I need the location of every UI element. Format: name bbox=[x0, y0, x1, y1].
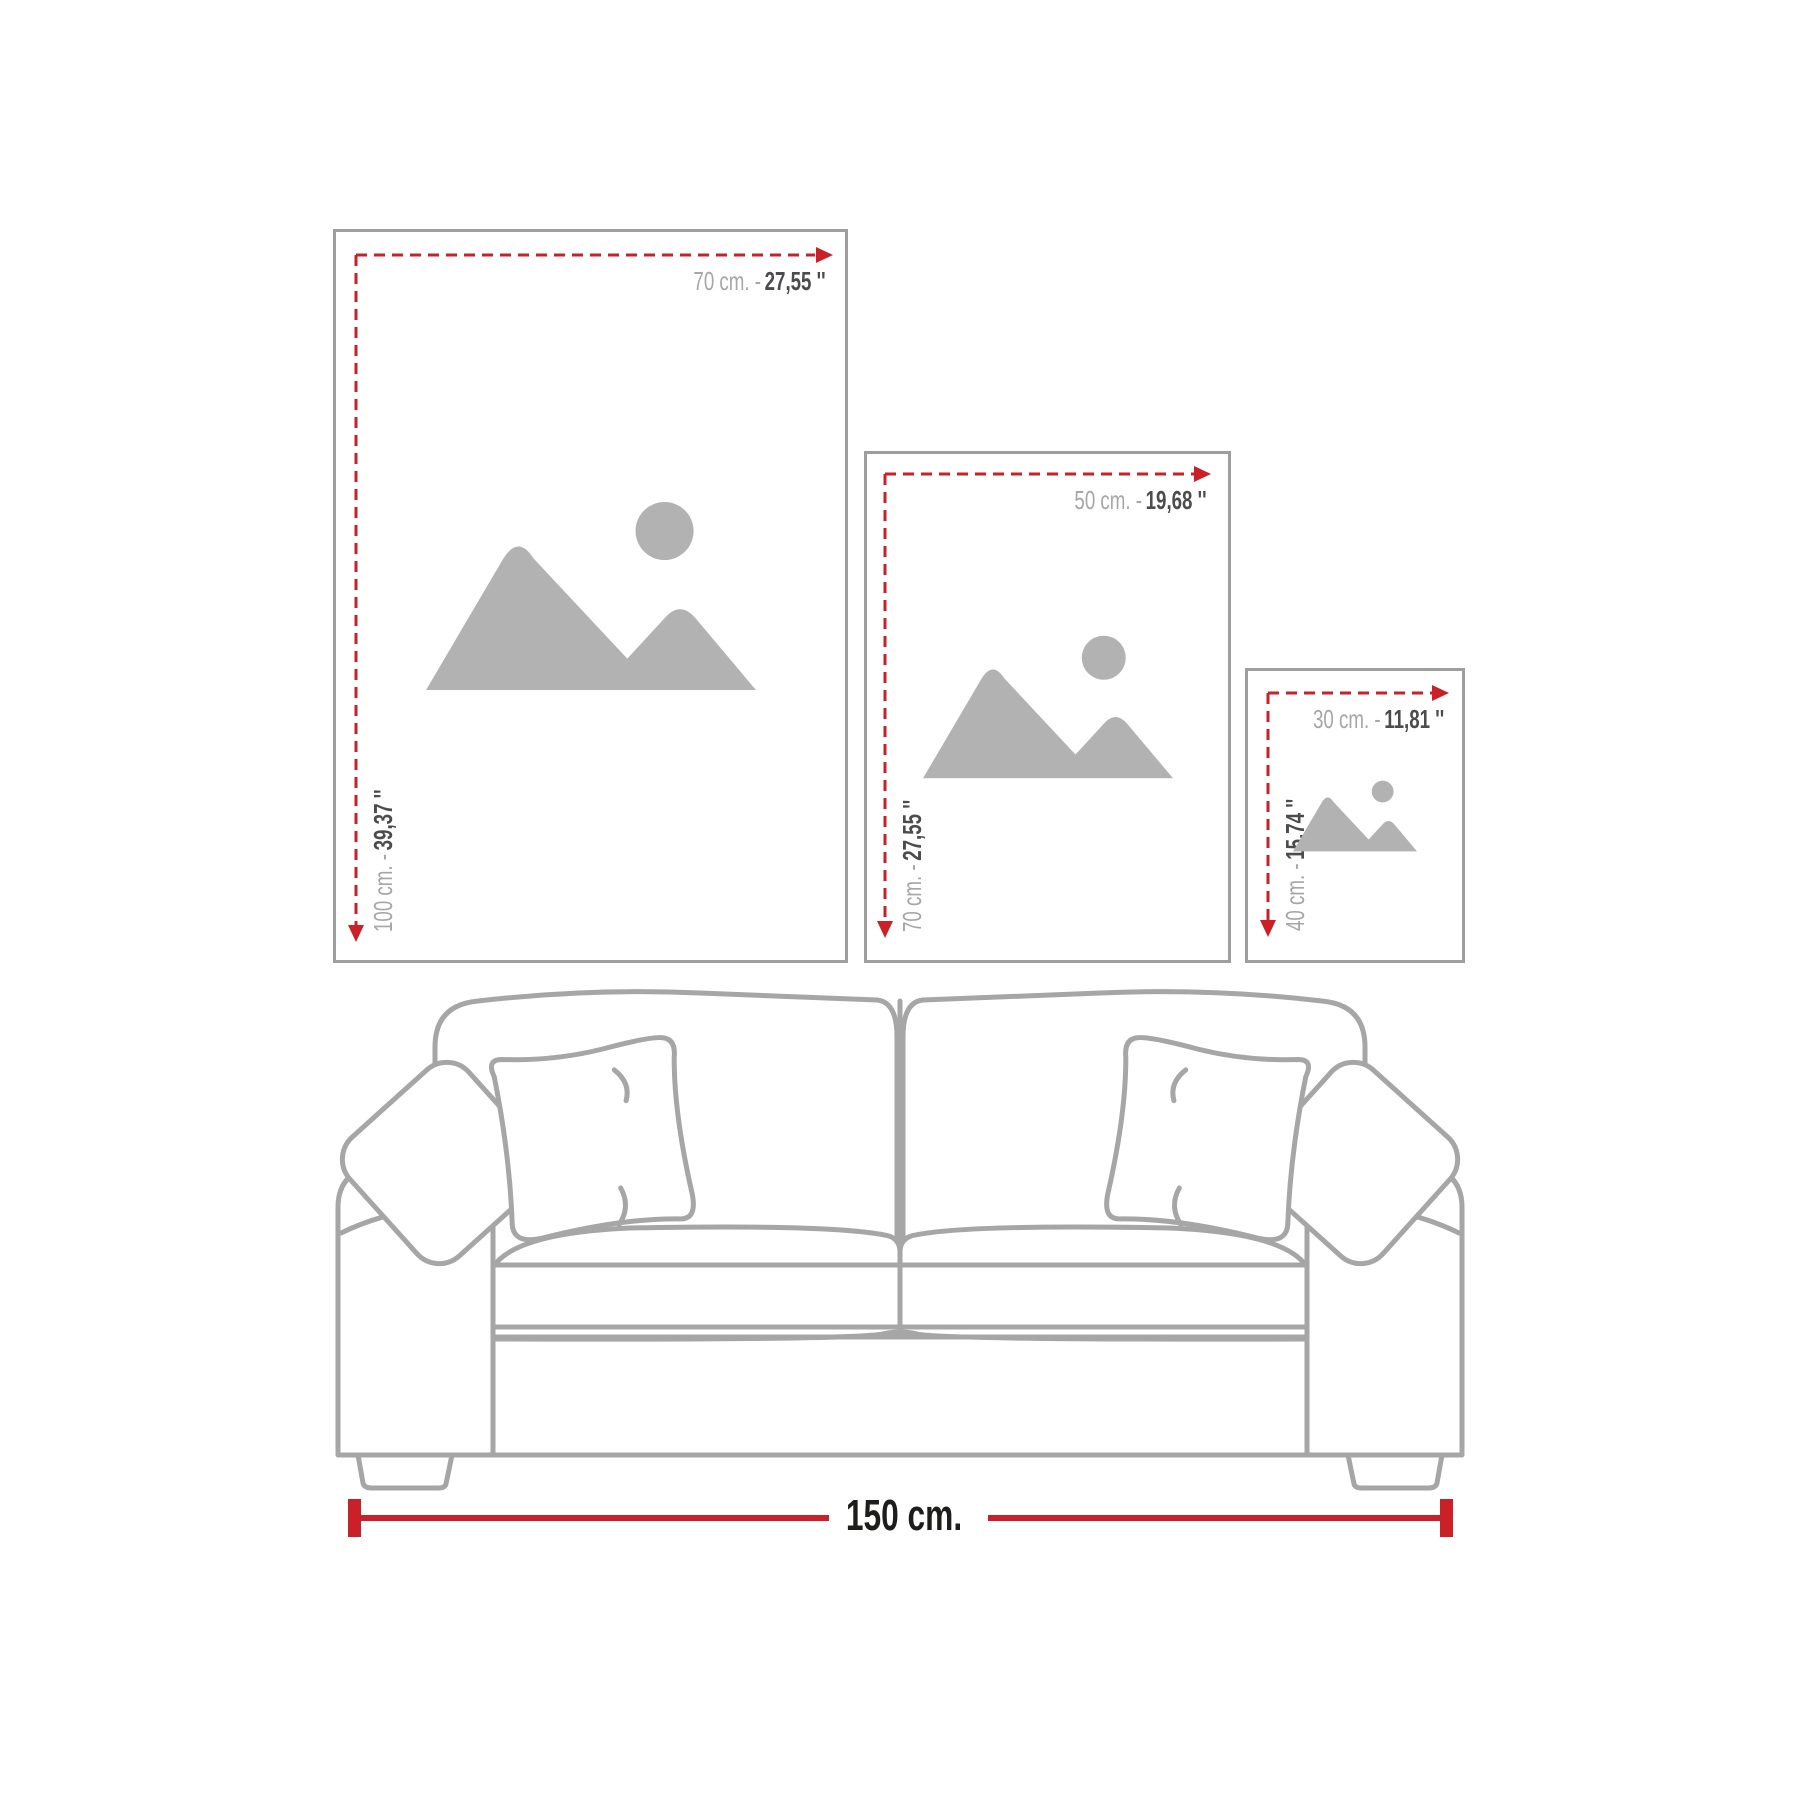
measure-line-right bbox=[988, 1515, 1440, 1521]
arrow-down-icon bbox=[348, 925, 364, 942]
width-inch-value: 11,81 '' bbox=[1384, 704, 1444, 734]
arrow-right-icon bbox=[1432, 685, 1449, 701]
height-inch-value: 39,37 '' bbox=[368, 789, 398, 850]
height-dimension-label: 100 cm. -39,37 '' bbox=[366, 789, 400, 932]
size-guide-canvas: 70 cm. -27,55 '' 100 cm. -39,37 '' 50 cm… bbox=[0, 0, 1800, 1800]
mountains-icon bbox=[923, 670, 1173, 779]
image-placeholder-icon bbox=[923, 636, 1173, 779]
width-inch-value: 27,55 '' bbox=[765, 266, 826, 296]
poster-frame-large: 70 cm. -27,55 '' 100 cm. -39,37 '' bbox=[333, 229, 848, 963]
sofa-seat-cushion-left bbox=[493, 1227, 900, 1337]
width-dimension-label: 30 cm. -11,81 '' bbox=[1313, 702, 1444, 736]
mountains-icon bbox=[426, 547, 756, 690]
sofa-width-label: 150 cm. bbox=[846, 1492, 962, 1540]
sofa-seat-cushion-right bbox=[900, 1227, 1307, 1337]
sofa-foot-right bbox=[1348, 1455, 1442, 1488]
pillow-outline bbox=[1104, 1036, 1309, 1243]
height-cm-value: 100 cm. - bbox=[368, 854, 398, 932]
arrow-down-icon bbox=[1260, 920, 1276, 937]
height-cm-value: 70 cm. - bbox=[897, 864, 927, 932]
poster-frame-small: 30 cm. -11,81 '' 40 cm. -15,74 '' bbox=[1245, 668, 1465, 963]
pillow-outline bbox=[490, 1036, 695, 1243]
width-dimension-label: 70 cm. -27,55 '' bbox=[694, 264, 826, 298]
arrow-down-icon bbox=[877, 921, 893, 938]
image-placeholder-icon bbox=[1293, 780, 1417, 851]
sofa-foot-left bbox=[358, 1455, 452, 1488]
arrow-right-icon bbox=[1194, 466, 1211, 482]
mountains-icon bbox=[1293, 797, 1417, 851]
width-inch-value: 19,68 '' bbox=[1146, 485, 1207, 515]
sofa-pillow-left bbox=[490, 1036, 695, 1243]
sun-icon bbox=[635, 502, 693, 560]
height-inch-value: 27,55 '' bbox=[897, 800, 927, 861]
measure-end-cap-left bbox=[348, 1499, 361, 1537]
measure-end-cap-right bbox=[1440, 1499, 1453, 1537]
image-placeholder-icon bbox=[426, 502, 756, 690]
measure-line-left bbox=[361, 1515, 829, 1521]
width-cm-value: 70 cm. - bbox=[694, 266, 762, 296]
height-cm-value: 40 cm. - bbox=[1280, 863, 1310, 931]
poster-frame-medium: 50 cm. -19,68 '' 70 cm. -27,55 '' bbox=[864, 451, 1231, 963]
sun-icon bbox=[1081, 636, 1125, 680]
sofa-illustration bbox=[300, 985, 1500, 1505]
sun-icon bbox=[1372, 780, 1394, 802]
height-dimension-label: 70 cm. -27,55 '' bbox=[895, 800, 929, 932]
width-cm-value: 30 cm. - bbox=[1313, 704, 1381, 734]
arrow-right-icon bbox=[816, 247, 833, 263]
width-cm-value: 50 cm. - bbox=[1075, 485, 1143, 515]
sofa-pillow-right bbox=[1104, 1036, 1309, 1243]
width-dimension-label: 50 cm. -19,68 '' bbox=[1075, 483, 1207, 517]
